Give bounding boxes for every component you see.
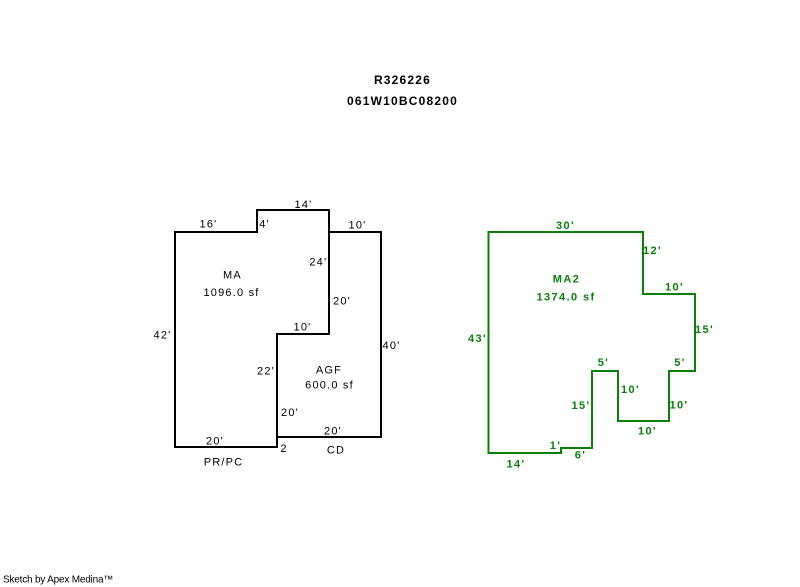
svg-text:30': 30': [556, 220, 575, 232]
svg-text:15': 15': [571, 400, 590, 412]
svg-text:22': 22': [257, 366, 275, 378]
svg-text:R326226: R326226: [374, 73, 431, 87]
svg-text:20': 20': [206, 436, 224, 448]
svg-text:10': 10': [349, 220, 367, 232]
svg-text:10': 10': [638, 426, 657, 438]
svg-text:20': 20': [281, 407, 299, 419]
svg-text:600.0 sf: 600.0 sf: [305, 380, 354, 392]
svg-text:2: 2: [280, 443, 287, 455]
svg-text:061W10BC08200: 061W10BC08200: [347, 94, 458, 108]
svg-text:20': 20': [324, 426, 342, 438]
svg-text:10': 10': [669, 400, 688, 412]
svg-text:15': 15': [695, 324, 714, 336]
svg-text:40': 40': [383, 340, 401, 352]
svg-text:MA: MA: [223, 270, 242, 282]
svg-text:42': 42': [154, 330, 172, 342]
svg-text:14': 14': [506, 459, 525, 471]
svg-text:43': 43': [468, 333, 487, 345]
svg-text:20': 20': [333, 296, 351, 308]
svg-text:6': 6': [575, 450, 587, 462]
svg-text:12': 12': [643, 245, 662, 257]
svg-text:5': 5': [598, 357, 610, 369]
svg-text:Sketch by Apex Medina™: Sketch by Apex Medina™: [3, 575, 113, 586]
svg-text:14': 14': [295, 199, 313, 211]
svg-text:1': 1': [550, 440, 562, 452]
svg-text:24': 24': [309, 257, 327, 269]
svg-text:1096.0 sf: 1096.0 sf: [203, 287, 259, 299]
svg-text:10': 10': [621, 384, 640, 396]
svg-text:PR/PC: PR/PC: [204, 457, 244, 469]
svg-text:AGF: AGF: [316, 365, 342, 377]
svg-text:4': 4': [259, 219, 270, 231]
svg-text:CD: CD: [327, 445, 345, 457]
svg-text:16': 16': [200, 219, 218, 231]
svg-text:5': 5': [674, 357, 686, 369]
svg-text:10': 10': [294, 322, 312, 334]
svg-text:MA2: MA2: [553, 274, 580, 286]
svg-text:1374.0 sf: 1374.0 sf: [536, 292, 595, 304]
svg-text:10': 10': [665, 282, 684, 294]
